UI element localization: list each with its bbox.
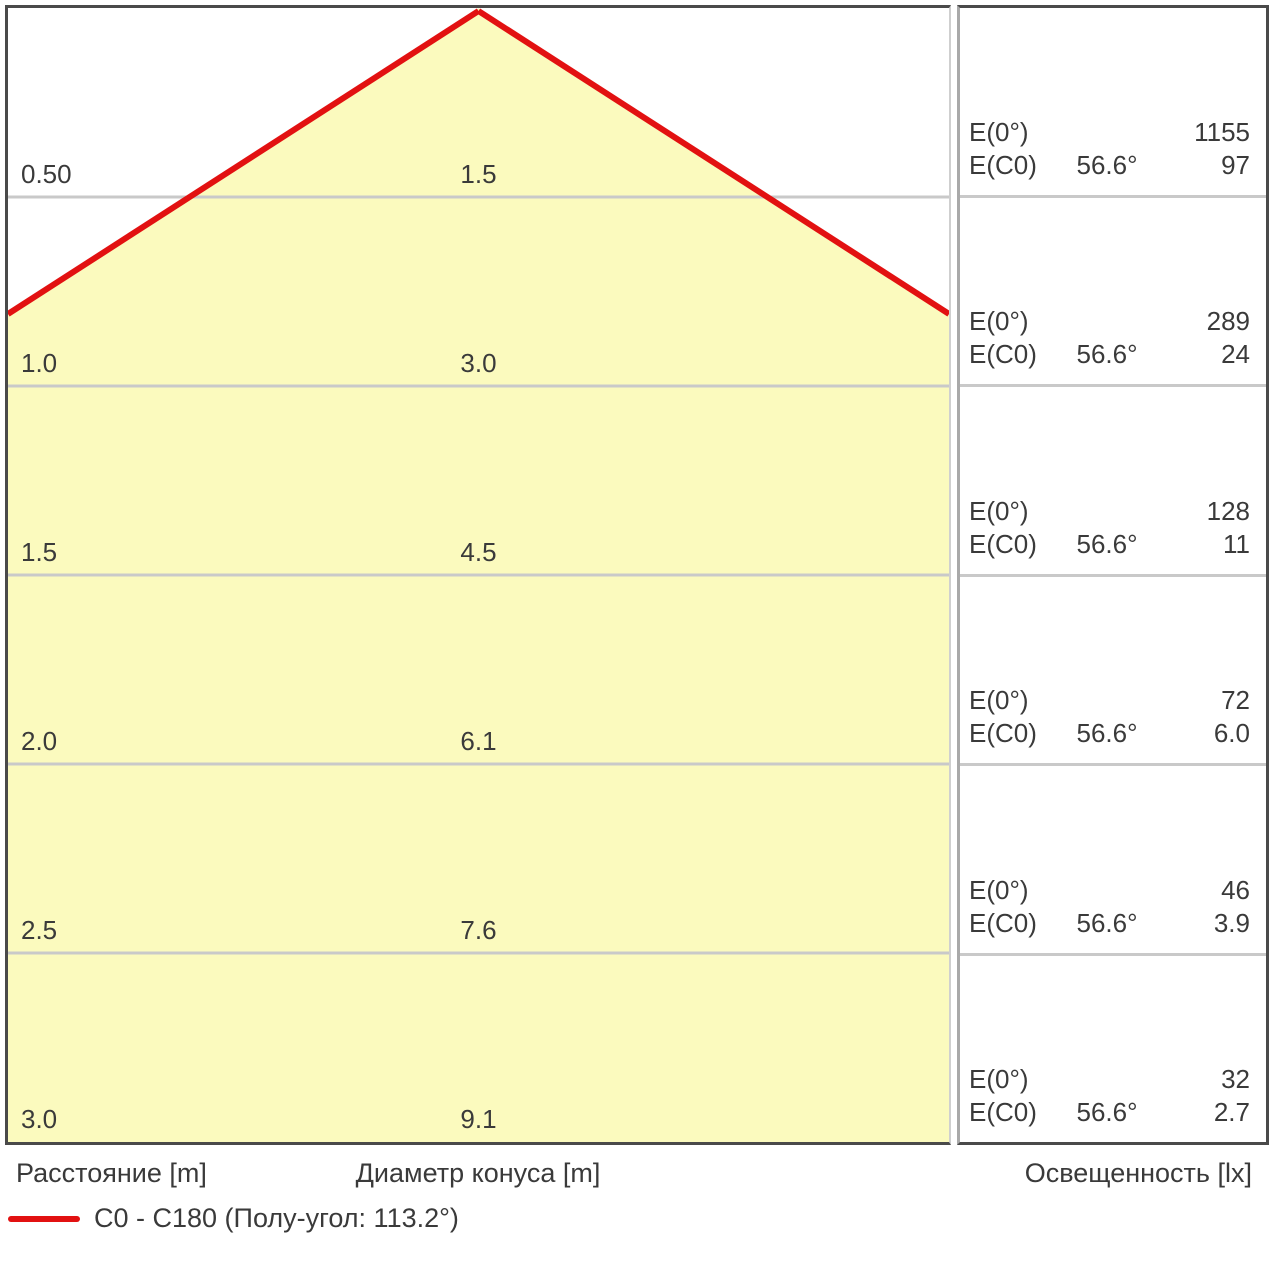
illuminance-axis-label: Освещенность [lx]: [1025, 1158, 1252, 1189]
diameter-value: 7.6: [8, 915, 949, 946]
e0-value: 289: [1153, 305, 1250, 338]
e0-label: E(0°): [969, 1063, 1061, 1096]
legend: C0 - C180 (Полу-угол: 113.2°): [8, 1203, 459, 1234]
ec0-label: E(C0): [969, 149, 1061, 182]
cone-row: 0.50 1.5: [8, 8, 949, 197]
angle-value: 56.6°: [1061, 338, 1153, 371]
angle-value: 56.6°: [1061, 907, 1153, 940]
diameter-value: 6.1: [8, 726, 949, 757]
e0-label: E(0°): [969, 684, 1061, 717]
diameter-value: 9.1: [8, 1104, 949, 1135]
illuminance-row: E(0°) 1155 E(C0) 56.6° 97: [960, 8, 1266, 195]
cone-row: 2.0 6.1: [8, 575, 949, 764]
ec0-value: 2.7: [1153, 1096, 1250, 1129]
diameter-value: 4.5: [8, 537, 949, 568]
cone-row: 1.5 4.5: [8, 386, 949, 575]
e0-value: 72: [1153, 684, 1250, 717]
ec0-value: 11: [1153, 528, 1250, 561]
angle-value: 56.6°: [1061, 149, 1153, 182]
e0-value: 128: [1153, 495, 1250, 528]
illuminance-row: E(0°) 72 E(C0) 56.6° 6.0: [960, 574, 1266, 764]
ec0-label: E(C0): [969, 528, 1061, 561]
illuminance-panel: E(0°) 1155 E(C0) 56.6° 97 E(0°) 289: [957, 5, 1269, 1145]
ec0-value: 97: [1153, 149, 1250, 182]
e0-value: 46: [1153, 874, 1250, 907]
illuminance-row: E(0°) 32 E(C0) 56.6° 2.7: [960, 953, 1266, 1143]
angle-value: 56.6°: [1061, 1096, 1153, 1129]
illuminance-row: E(0°) 128 E(C0) 56.6° 11: [960, 384, 1266, 574]
ec0-label: E(C0): [969, 1096, 1061, 1129]
illuminance-row: E(0°) 46 E(C0) 56.6° 3.9: [960, 763, 1266, 953]
e0-label: E(0°): [969, 874, 1061, 907]
legend-line-swatch: [8, 1216, 80, 1222]
illuminance-row: E(0°) 289 E(C0) 56.6° 24: [960, 195, 1266, 385]
ec0-value: 3.9: [1153, 907, 1250, 940]
cone-row: 1.0 3.0: [8, 197, 949, 386]
ec0-value: 24: [1153, 338, 1250, 371]
cone-row: 2.5 7.6: [8, 764, 949, 953]
cone-chart-panel: 0.50 1.5 1.0 3.0 1.5 4.5 2.0 6.1 2.5 7.6…: [5, 5, 951, 1145]
diameter-axis-label: Диаметр конуса [m]: [5, 1158, 951, 1189]
ec0-value: 6.0: [1153, 717, 1250, 750]
e0-label: E(0°): [969, 495, 1061, 528]
diameter-value: 1.5: [8, 159, 949, 190]
cone-row: 3.0 9.1: [8, 953, 949, 1142]
e0-value: 32: [1153, 1063, 1250, 1096]
legend-label: C0 - C180 (Полу-угол: 113.2°): [94, 1203, 459, 1234]
cone-rows: 0.50 1.5 1.0 3.0 1.5 4.5 2.0 6.1 2.5 7.6…: [8, 8, 949, 1142]
e0-value: 1155: [1153, 116, 1250, 149]
diameter-value: 3.0: [8, 348, 949, 379]
ec0-label: E(C0): [969, 338, 1061, 371]
ec0-label: E(C0): [969, 907, 1061, 940]
angle-value: 56.6°: [1061, 717, 1153, 750]
e0-label: E(0°): [969, 116, 1061, 149]
ec0-label: E(C0): [969, 717, 1061, 750]
angle-value: 56.6°: [1061, 528, 1153, 561]
e0-label: E(0°): [969, 305, 1061, 338]
cone-diagram-page: 0.50 1.5 1.0 3.0 1.5 4.5 2.0 6.1 2.5 7.6…: [0, 0, 1280, 1280]
